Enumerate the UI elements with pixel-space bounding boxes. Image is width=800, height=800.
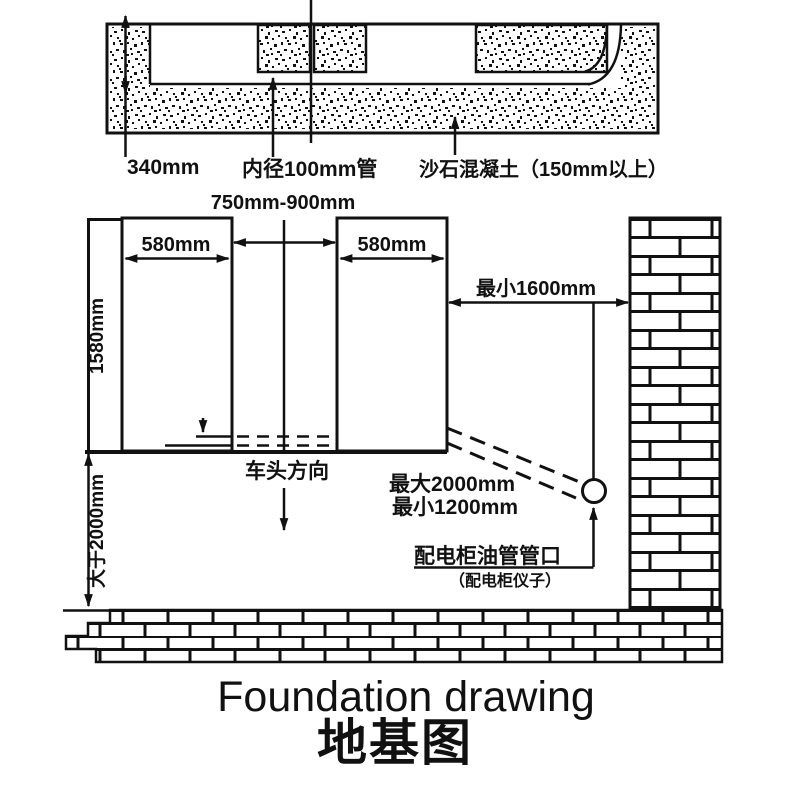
concrete-block-b (314, 25, 366, 72)
title-zh: 地基图 (317, 715, 473, 771)
dim-ground-clearance-label: 大于2000mm (85, 474, 108, 588)
pipe-label: 内径100mm管 (242, 157, 377, 181)
dim-right-pit-label: 580mm (358, 234, 427, 256)
pit-bottom-dashed-lines (237, 437, 334, 446)
brick-wall-right (630, 218, 720, 610)
title-en: Foundation drawing (217, 673, 595, 721)
vehicle-direction-label: 车头方向 (245, 459, 329, 483)
bottom-wall (66, 610, 722, 662)
concrete-fill-right (621, 27, 655, 129)
foundation-drawing: 340mm 内径100mm管 沙石混凝土（150mm以上） 750mm-900m… (0, 0, 800, 800)
pipe-min-label: 最小1200mm (392, 496, 518, 519)
plan-view: 750mm-900mm 580mm 580mm 1580mm 最小1600mm … (85, 192, 628, 606)
port-note-label: （配电柜仪子） (449, 571, 561, 590)
title-block: Foundation drawing 地基图 (217, 673, 595, 771)
right-wall (630, 218, 720, 610)
concrete-block-a (258, 25, 310, 72)
concrete-label: 沙石混凝土（150mm以上） (419, 158, 668, 181)
dim-left-pit-label: 580mm (142, 234, 211, 256)
pipe-port-circle (583, 480, 606, 503)
foundation-drawing-page: 340mm 内径100mm管 沙石混凝土（150mm以上） 750mm-900m… (0, 0, 800, 800)
dim-pit-depth-label: 1580mm (87, 298, 108, 374)
brick-wall-bottom (63, 610, 722, 662)
pipe-max-label: 最大2000mm (389, 473, 515, 496)
concrete-block-c (476, 25, 607, 72)
dim-gap-label: 750mm-900mm (211, 192, 356, 214)
port-label: 配电柜油管管口 (414, 544, 561, 568)
dim-wall-clearance-label: 最小1600mm (476, 277, 596, 300)
cross-section-view: 340mm 内径100mm管 沙石混凝土（150mm以上） (107, 0, 668, 181)
concrete-fill-bottom (110, 88, 655, 129)
dim-340-label: 340mm (127, 156, 199, 179)
